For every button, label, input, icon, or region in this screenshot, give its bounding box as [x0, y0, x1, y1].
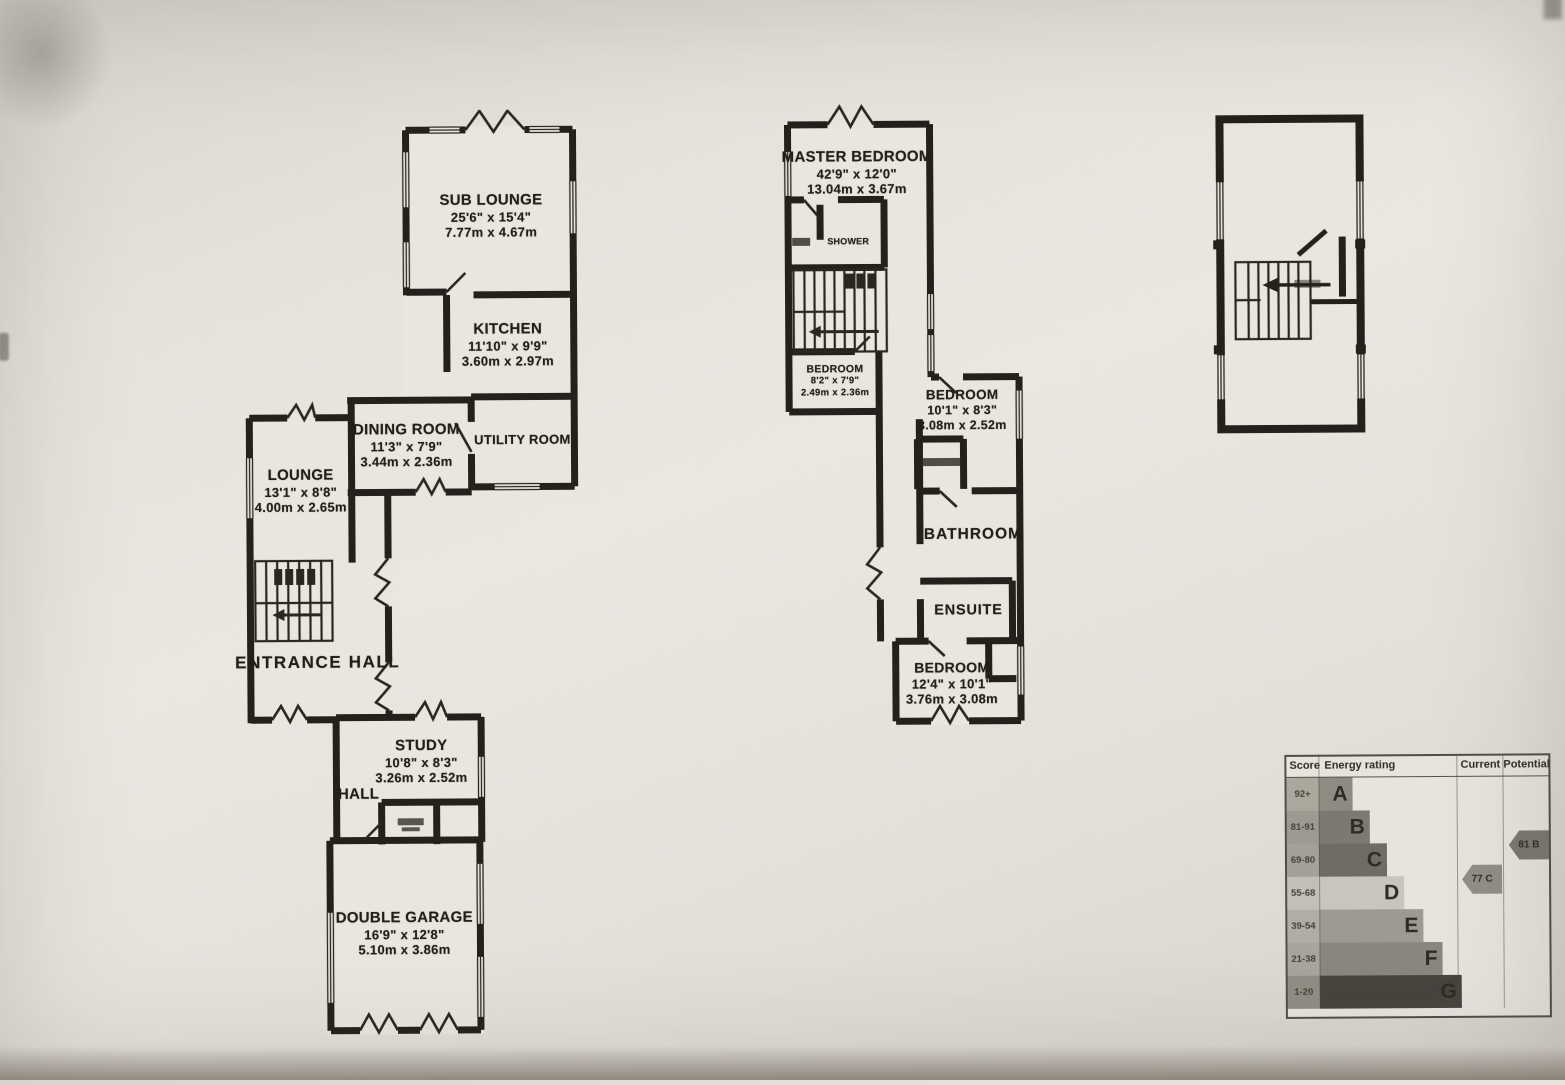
- room-label-dining-room: DINING ROOM 11'3" x 7'9" 3.44m x 2.36m: [353, 421, 460, 470]
- epc-header-potential: Potential: [1503, 758, 1549, 770]
- epc-band-row-f: 21-38F: [1287, 941, 1549, 976]
- epc-band-row-d: 55-68D: [1287, 875, 1549, 910]
- ground-floor-walls: [237, 109, 593, 1041]
- epc-header-score: Score: [1289, 760, 1319, 772]
- epc-letter: A: [1332, 783, 1347, 806]
- room-label-lounge: LOUNGE 13'1" x 8'8" 4.00m x 2.65m: [255, 466, 347, 515]
- room-label-utility-room: UTILITY ROOM: [474, 432, 571, 448]
- room-label-bathroom: BATHROOM: [924, 525, 1022, 544]
- epc-header-row: Score Energy rating Current Potential: [1286, 755, 1548, 778]
- epc-letter: F: [1425, 947, 1438, 970]
- room-label-hall: HALL: [338, 786, 379, 804]
- room-label-bedroom-small: BEDROOM 8'2" x 7'9" 2.49m x 2.36m: [801, 363, 870, 398]
- room-label-entrance-hall: ENTRANCE HALL: [235, 652, 400, 673]
- photo-mark-left-edge: [0, 333, 9, 361]
- room-label-bedroom-4: BEDROOM 12'4" x 10'1" 3.76m x 3.08m: [906, 659, 998, 707]
- epc-letter: C: [1367, 848, 1382, 871]
- epc-letter: G: [1440, 980, 1456, 1003]
- ground-floor-plan: [237, 109, 593, 1041]
- epc-body: 92+A 81-91B 69-80C 55-68D 39-54E 21-38F …: [1286, 776, 1549, 1019]
- epc-chart: Score Energy rating Current Potential 92…: [1284, 753, 1552, 1019]
- second-floor-walls: [1210, 106, 1374, 441]
- epc-letter: B: [1350, 815, 1365, 838]
- epc-band-row-a: 92+A: [1286, 776, 1548, 811]
- room-label-ensuite: ENSUITE: [934, 602, 1003, 620]
- photo-mark-top-right: [1544, 0, 1562, 19]
- floorplan-sheet: SUB LOUNGE 25'6" x 15'4" 7.77m x 4.67m K…: [0, 0, 1565, 1085]
- epc-letter: E: [1404, 914, 1418, 937]
- photo-smudge-top-left: [0, 0, 112, 130]
- wardrobe-label-smudge: [921, 458, 961, 466]
- epc-header-rating: Energy rating: [1324, 759, 1395, 771]
- epc-header-current: Current: [1457, 759, 1503, 771]
- epc-band-row-g: 1-20G: [1288, 974, 1550, 1009]
- room-label-study: STUDY 10'8" x 8'3" 3.26m x 2.52m: [375, 737, 467, 786]
- room-label-double-garage: DOUBLE GARAGE 16'9" x 12'8" 5.10m x 3.86…: [336, 909, 474, 958]
- shower-dims-smudge: [792, 238, 810, 246]
- epc-band-row-b: 81-91B: [1287, 809, 1549, 844]
- room-label-shower: SHOWER: [827, 236, 869, 247]
- room-label-master-bedroom: MASTER BEDROOM 42'9" x 12'0" 13.04m x 3.…: [782, 148, 932, 197]
- second-floor-plan: [1210, 106, 1374, 441]
- room-label-sub-lounge: SUB LOUNGE 25'6" x 15'4" 7.77m x 4.67m: [439, 191, 542, 240]
- room-label-kitchen: KITCHEN 11'10" x 9'9" 3.60m x 2.97m: [462, 320, 554, 369]
- room-label-bedroom-3: BEDROOM 10'1" x 8'3" 3.08m x 2.52m: [918, 387, 1007, 433]
- epc-band-row-e: 39-54E: [1287, 908, 1549, 943]
- epc-letter: D: [1384, 881, 1399, 904]
- epc-band-row-c: 69-80C: [1287, 842, 1549, 877]
